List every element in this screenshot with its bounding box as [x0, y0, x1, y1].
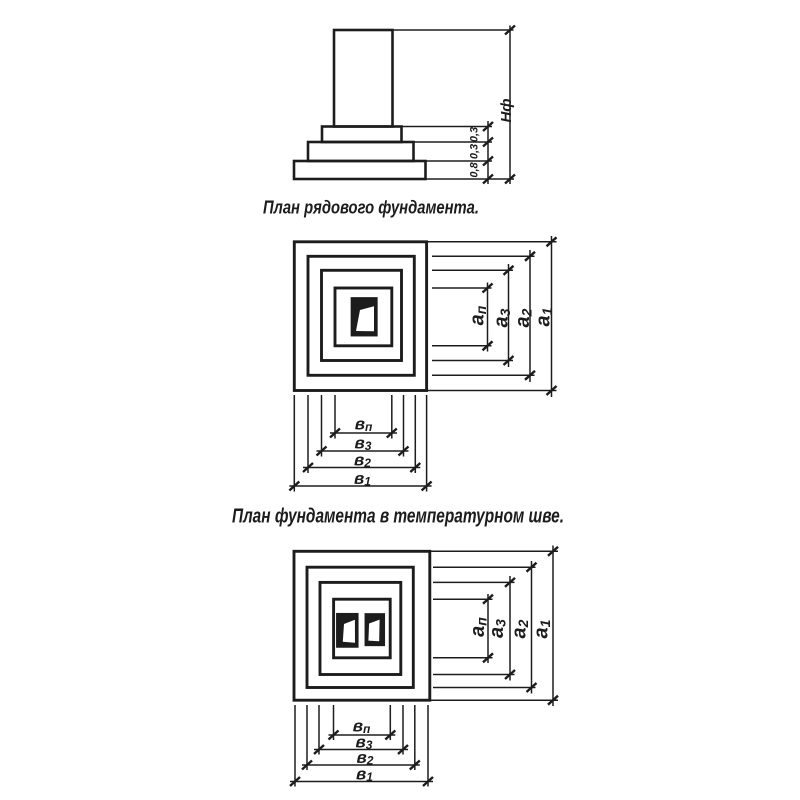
svg-text:а2: а2 [512, 308, 535, 327]
svg-text:0,8: 0,8 [469, 161, 481, 177]
svg-text:План рядового фундамента.: План рядового фундамента. [263, 198, 479, 218]
svg-text:в2: в2 [354, 451, 371, 471]
svg-text:0,3: 0,3 [469, 144, 481, 159]
svg-text:вп: вп [355, 415, 373, 435]
svg-text:в1: в1 [354, 469, 371, 489]
svg-text:а1: а1 [533, 307, 556, 326]
svg-text:Нф: Нф [498, 98, 515, 122]
svg-text:0,3: 0,3 [469, 127, 481, 142]
svg-text:ап: ап [467, 305, 490, 325]
svg-text:План фундамента в температурно: План фундамента в температурном шве. [232, 506, 564, 528]
svg-text:а2: а2 [509, 619, 532, 638]
svg-text:а1: а1 [531, 619, 554, 638]
svg-text:а3: а3 [491, 308, 514, 327]
